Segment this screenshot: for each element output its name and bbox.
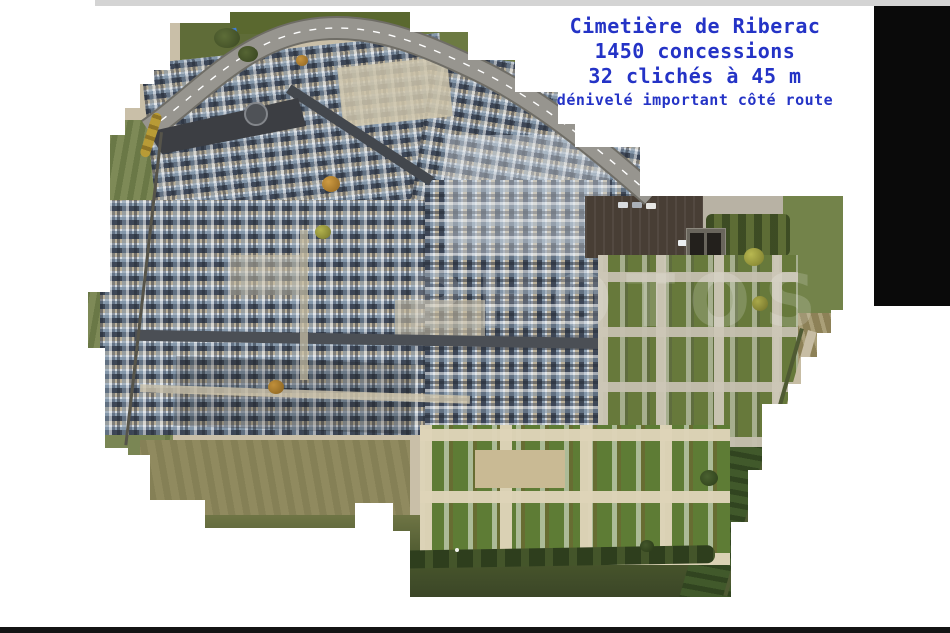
tree <box>296 55 308 66</box>
tree <box>214 28 240 48</box>
viewer-black-panel <box>874 6 950 306</box>
tree <box>315 225 331 239</box>
watermark-text: PHOTOS <box>410 258 830 344</box>
annotation-line-4: dénivelé important côté route <box>540 91 850 109</box>
tree <box>322 176 340 192</box>
tree <box>268 380 284 394</box>
letterbox-bottom-bar <box>0 627 950 633</box>
tree <box>238 46 258 62</box>
screenshot-root: PHOTOS Cimetière de Riberac 1450 concess… <box>0 0 950 633</box>
tree <box>700 470 718 486</box>
annotation-line-3: 32 clichés à 45 m <box>540 64 850 88</box>
annotation-title: Cimetière de Riberac <box>540 14 850 38</box>
entrance-roundabout <box>245 103 267 125</box>
tree <box>640 540 654 552</box>
annotation-block: Cimetière de Riberac 1450 concessions 32… <box>540 14 850 109</box>
annotation-line-2: 1450 concessions <box>540 39 850 63</box>
letterbox-top-line <box>95 0 950 6</box>
